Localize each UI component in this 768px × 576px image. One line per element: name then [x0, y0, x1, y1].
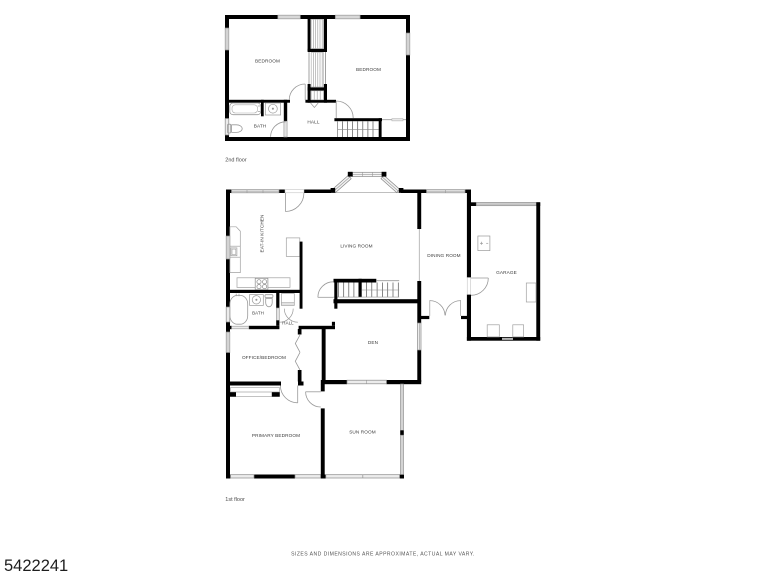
svg-text:SIZES AND DIMENSIONS ARE APPRO: SIZES AND DIMENSIONS ARE APPROXIMATE, AC… — [291, 552, 475, 558]
svg-text:DINING ROOM: DINING ROOM — [427, 253, 460, 258]
svg-text:BATH: BATH — [254, 124, 267, 129]
svg-text:PRIMARY BEDROOM: PRIMARY BEDROOM — [252, 433, 300, 438]
svg-text:HALL: HALL — [307, 120, 319, 125]
svg-text:OFFICE/BEDROOM: OFFICE/BEDROOM — [242, 355, 286, 360]
svg-text:SUN ROOM: SUN ROOM — [349, 430, 376, 435]
svg-text:1st floor: 1st floor — [225, 497, 245, 503]
svg-text:DEN: DEN — [368, 340, 378, 345]
svg-text:GARAGE: GARAGE — [496, 270, 517, 275]
svg-text:LIVING ROOM: LIVING ROOM — [340, 244, 372, 249]
svg-text:BEDROOM: BEDROOM — [356, 67, 381, 72]
svg-text:2nd floor: 2nd floor — [225, 158, 247, 164]
svg-text:BATH: BATH — [252, 311, 264, 316]
svg-text:5422241: 5422241 — [4, 557, 68, 575]
svg-text:EAT-IN KITCHEN: EAT-IN KITCHEN — [260, 214, 265, 252]
svg-text:BEDROOM: BEDROOM — [255, 58, 280, 63]
svg-text:HALL: HALL — [282, 321, 294, 326]
